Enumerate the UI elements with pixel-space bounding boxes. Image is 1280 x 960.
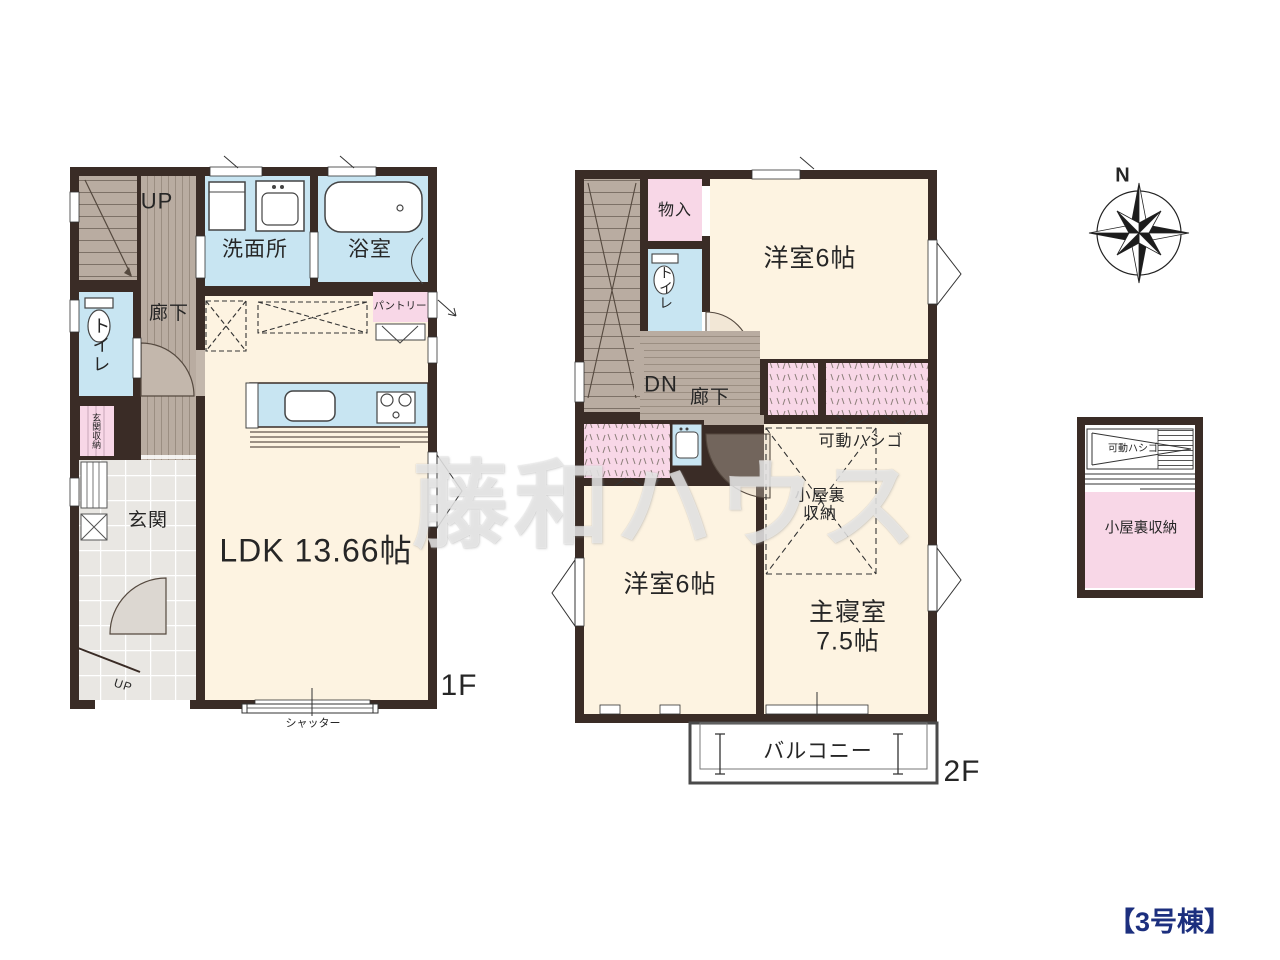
- compass-rose: [1089, 183, 1189, 283]
- building-number-label: 【3号棟】: [1108, 900, 1231, 939]
- floorplan-drawing: [0, 0, 1280, 960]
- bedroom-b-label: 洋室6帖: [624, 571, 717, 600]
- washbasin-tap: [686, 428, 689, 431]
- washbasin-tap: [680, 428, 683, 431]
- attic-pink-area: [1085, 492, 1195, 588]
- washing-machine-icon: [209, 182, 245, 230]
- pantry-label: パントリー: [373, 300, 426, 312]
- bath-label: 浴室: [348, 238, 392, 262]
- toilet-1f-label: トイレ: [90, 317, 111, 374]
- stairs-up-label: UP: [141, 188, 174, 213]
- kitchen-sink-icon: [285, 391, 335, 421]
- storage-door-gap: [702, 186, 710, 236]
- storage-2f-label: 物入: [658, 202, 692, 220]
- ldk-room: [205, 296, 428, 700]
- vanity-tap-dot: [280, 185, 284, 189]
- master-bedroom-label: 主寝室 7.5帖: [809, 598, 887, 656]
- floor-2f-label: 2F: [943, 755, 980, 790]
- entrance-storage-label: 玄関収納: [91, 413, 101, 449]
- floorplan-page: UP 洗面所 浴室 廊下 トイレ 玄関収納 玄関 UP パントリー LDK 13…: [0, 0, 1280, 960]
- master-bedroom-room: [764, 424, 928, 714]
- stairs-down-label: DN: [644, 371, 678, 396]
- ladder-hatch: [1158, 429, 1193, 469]
- bedroom-b-room: [584, 486, 756, 714]
- toilet-tank-2f: [652, 254, 678, 263]
- vent-ticks-1f: [224, 156, 354, 168]
- counter-end-panel: [246, 383, 258, 428]
- hallway-1f-label: 廊下: [149, 303, 189, 325]
- attic-ladder-label: 可動ハシゴ: [1108, 443, 1158, 455]
- entrance-label: 玄関: [128, 510, 168, 532]
- window-opening-triangle-2f: [552, 560, 575, 626]
- attic-name-label: 小屋裏収納: [1105, 521, 1178, 538]
- toilet-2f-label: トイレ: [658, 266, 674, 311]
- shoe-cabinet-icon: [81, 462, 107, 508]
- ldk-label: LDK 13.66帖: [219, 533, 412, 570]
- compass-north-label: N: [1115, 165, 1130, 188]
- closet-left: [584, 424, 670, 478]
- ladder-2f-label: 可動ハシゴ: [818, 433, 903, 451]
- window-opening-triangle-2f: [937, 548, 961, 612]
- closet-small: [768, 363, 818, 415]
- entrance-step-line: [141, 455, 196, 459]
- window-opening-triangle-1f: [437, 455, 462, 528]
- vanity-tap-dot: [272, 185, 276, 189]
- bathtub-icon: [325, 182, 422, 232]
- closet-long: [826, 363, 928, 415]
- attic-2f-label: 小屋裏 収納: [794, 488, 845, 525]
- floor-1f-label: 1F: [440, 669, 477, 704]
- vent-arrow-1f: [438, 300, 456, 316]
- shutter-label: シャッター: [286, 718, 341, 731]
- window-opening-triangle-2f: [937, 243, 961, 305]
- washroom-label: 洗面所: [222, 238, 288, 262]
- stair-hall-opening: [634, 345, 644, 395]
- porch-opening: [95, 700, 190, 709]
- floor-plan-2f: [552, 157, 961, 783]
- balcony-label: バルコニー: [763, 740, 873, 764]
- hallway-2f-label: 廊下: [690, 387, 730, 409]
- toilet-tank-1f: [85, 298, 113, 308]
- bedroom-a-label: 洋室6帖: [764, 245, 857, 274]
- hall-ldk-opening: [196, 350, 205, 396]
- washbasin-bowl: [676, 432, 698, 458]
- vent-tick-2f: [800, 157, 814, 169]
- master-door-opening: [704, 415, 764, 425]
